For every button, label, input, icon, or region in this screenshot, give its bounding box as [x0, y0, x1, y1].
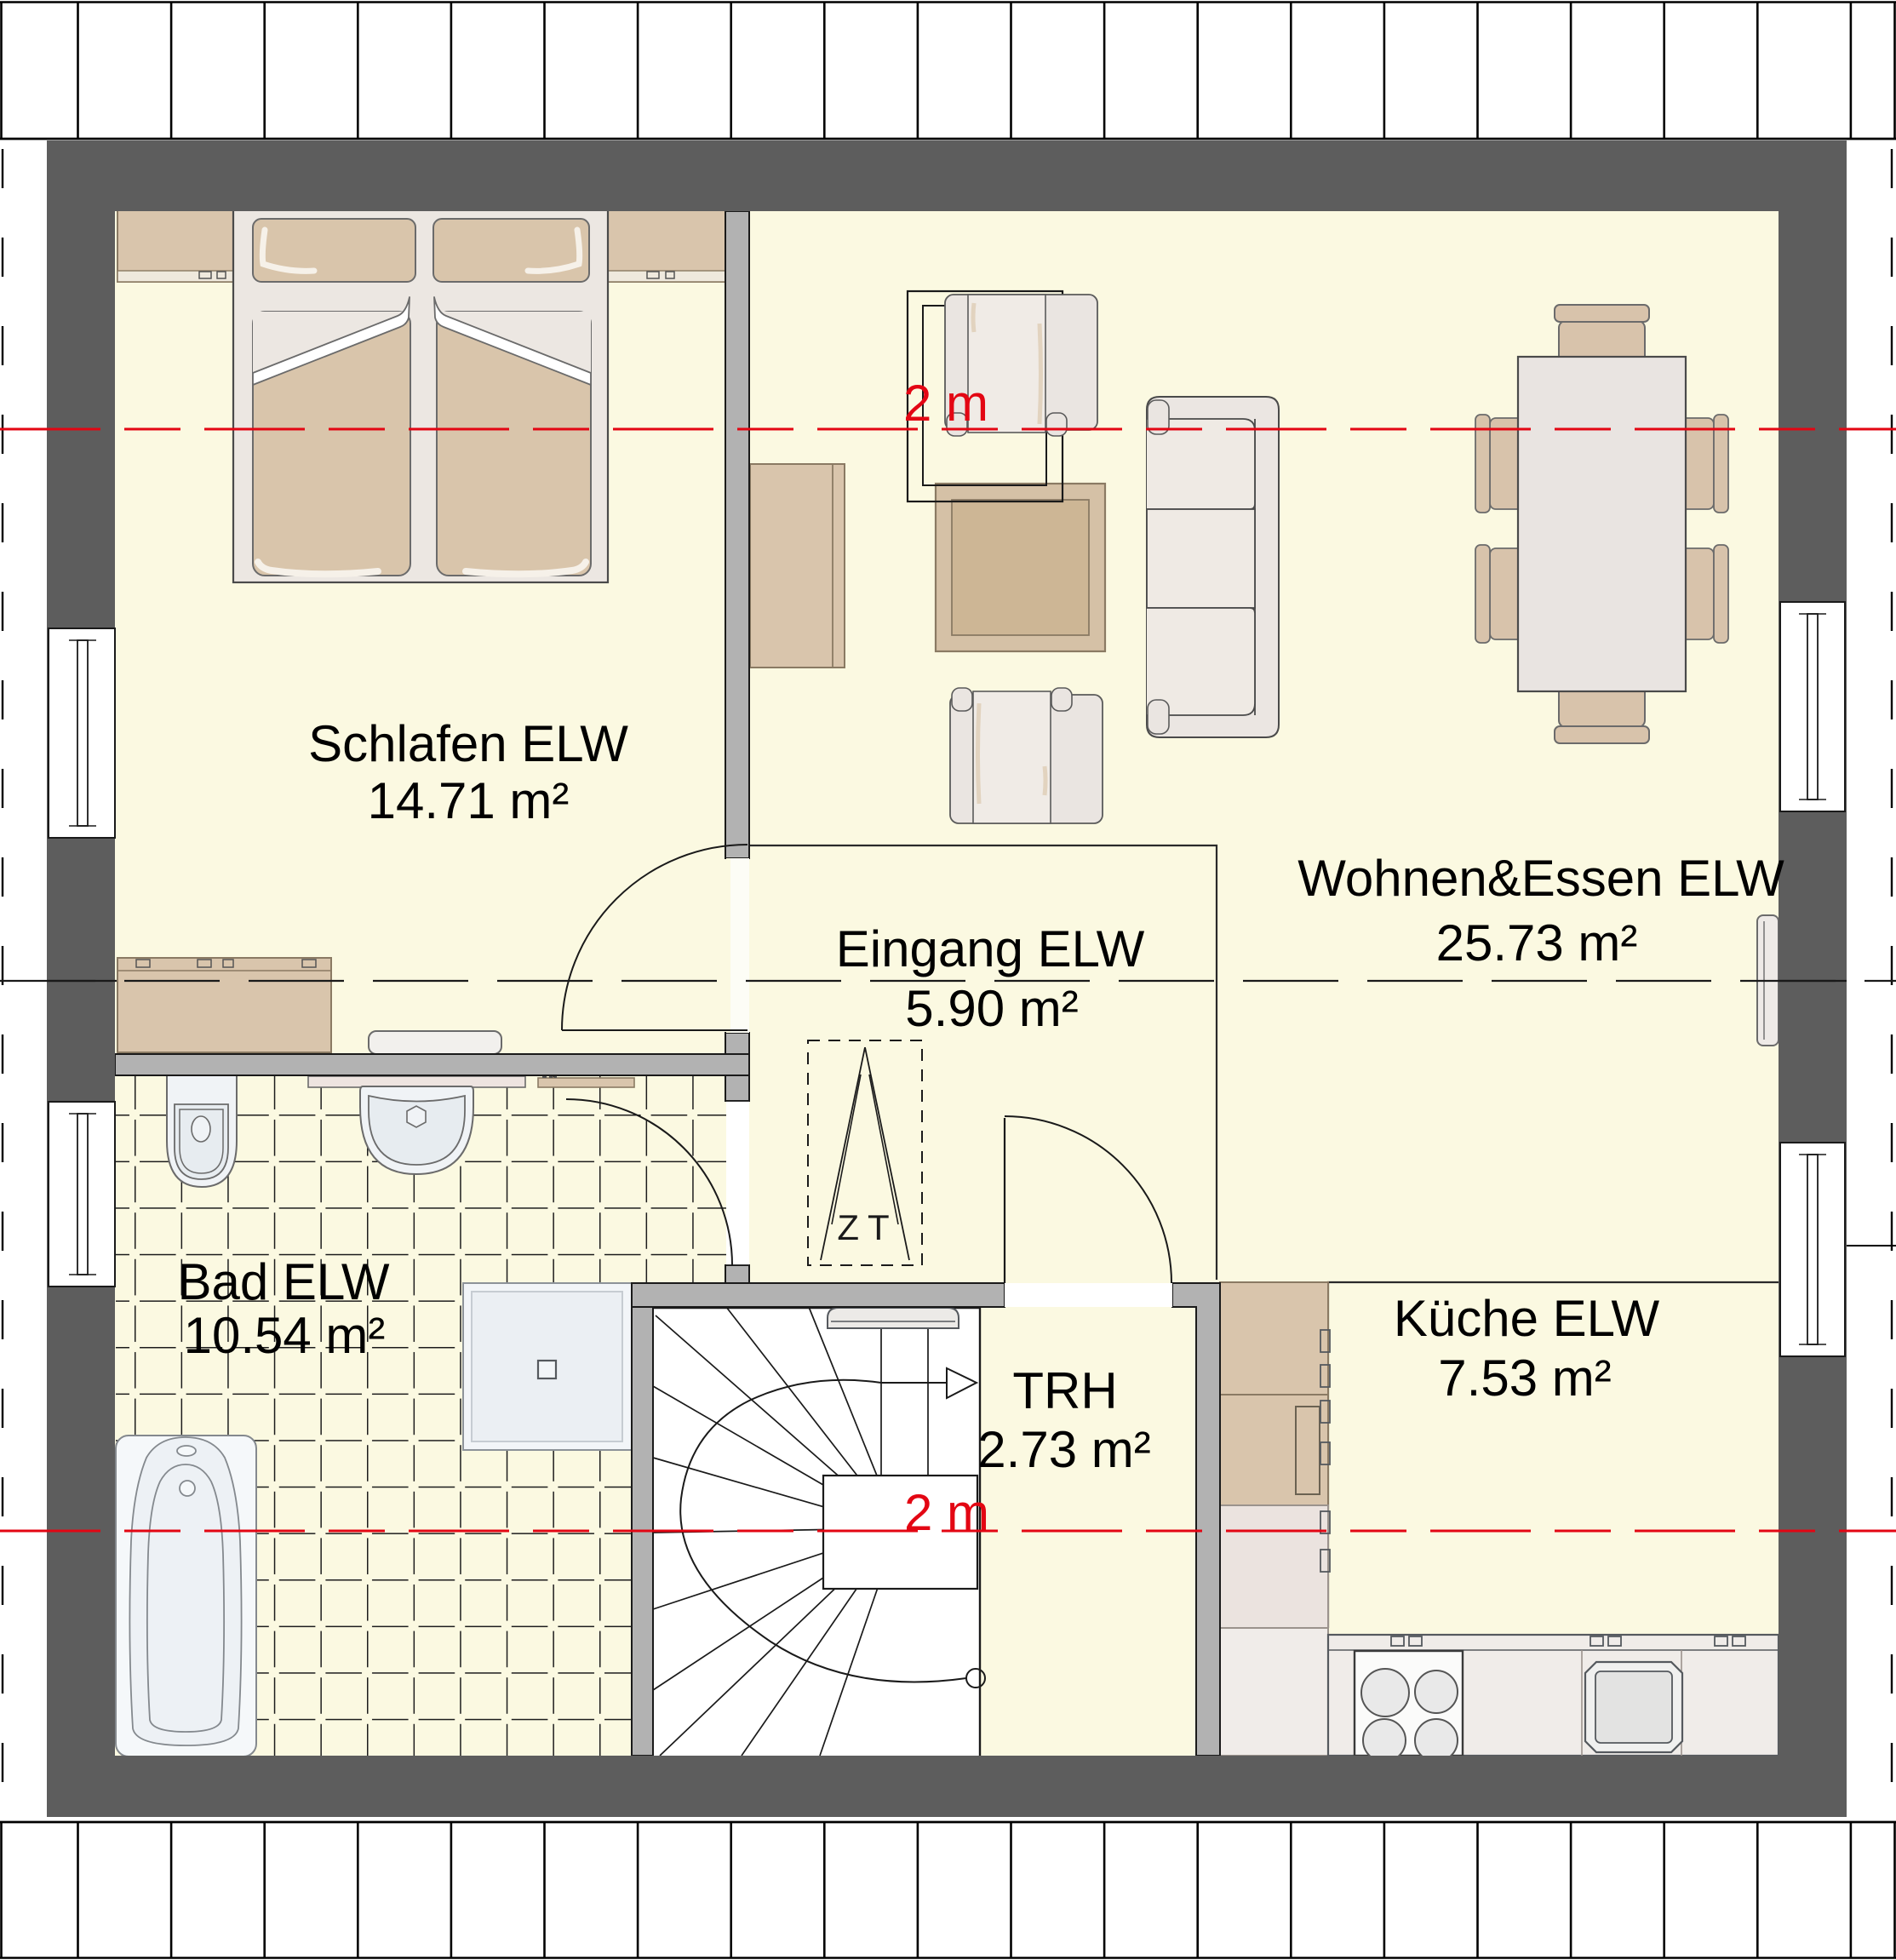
svg-text:2 m: 2 m [904, 1484, 989, 1541]
svg-text:TRH: TRH [1012, 1362, 1117, 1419]
svg-text:5.90 m²: 5.90 m² [905, 980, 1078, 1037]
svg-text:2 m: 2 m [903, 375, 988, 432]
svg-text:7.53 m²: 7.53 m² [1438, 1350, 1611, 1407]
svg-text:Küche ELW: Küche ELW [1394, 1290, 1660, 1347]
svg-text:ZT: ZT [837, 1207, 897, 1247]
svg-text:Eingang ELW: Eingang ELW [836, 920, 1145, 977]
svg-text:Schlafen ELW: Schlafen ELW [308, 715, 628, 772]
svg-text:25.73 m²: 25.73 m² [1436, 914, 1638, 971]
svg-text:Bad ELW: Bad ELW [178, 1253, 390, 1310]
svg-text:Wohnen&Essen ELW: Wohnen&Essen ELW [1297, 850, 1784, 907]
svg-text:10.54 m²: 10.54 m² [184, 1307, 386, 1364]
svg-text:2.73 m²: 2.73 m² [977, 1421, 1150, 1478]
svg-text:14.71 m²: 14.71 m² [368, 772, 570, 829]
